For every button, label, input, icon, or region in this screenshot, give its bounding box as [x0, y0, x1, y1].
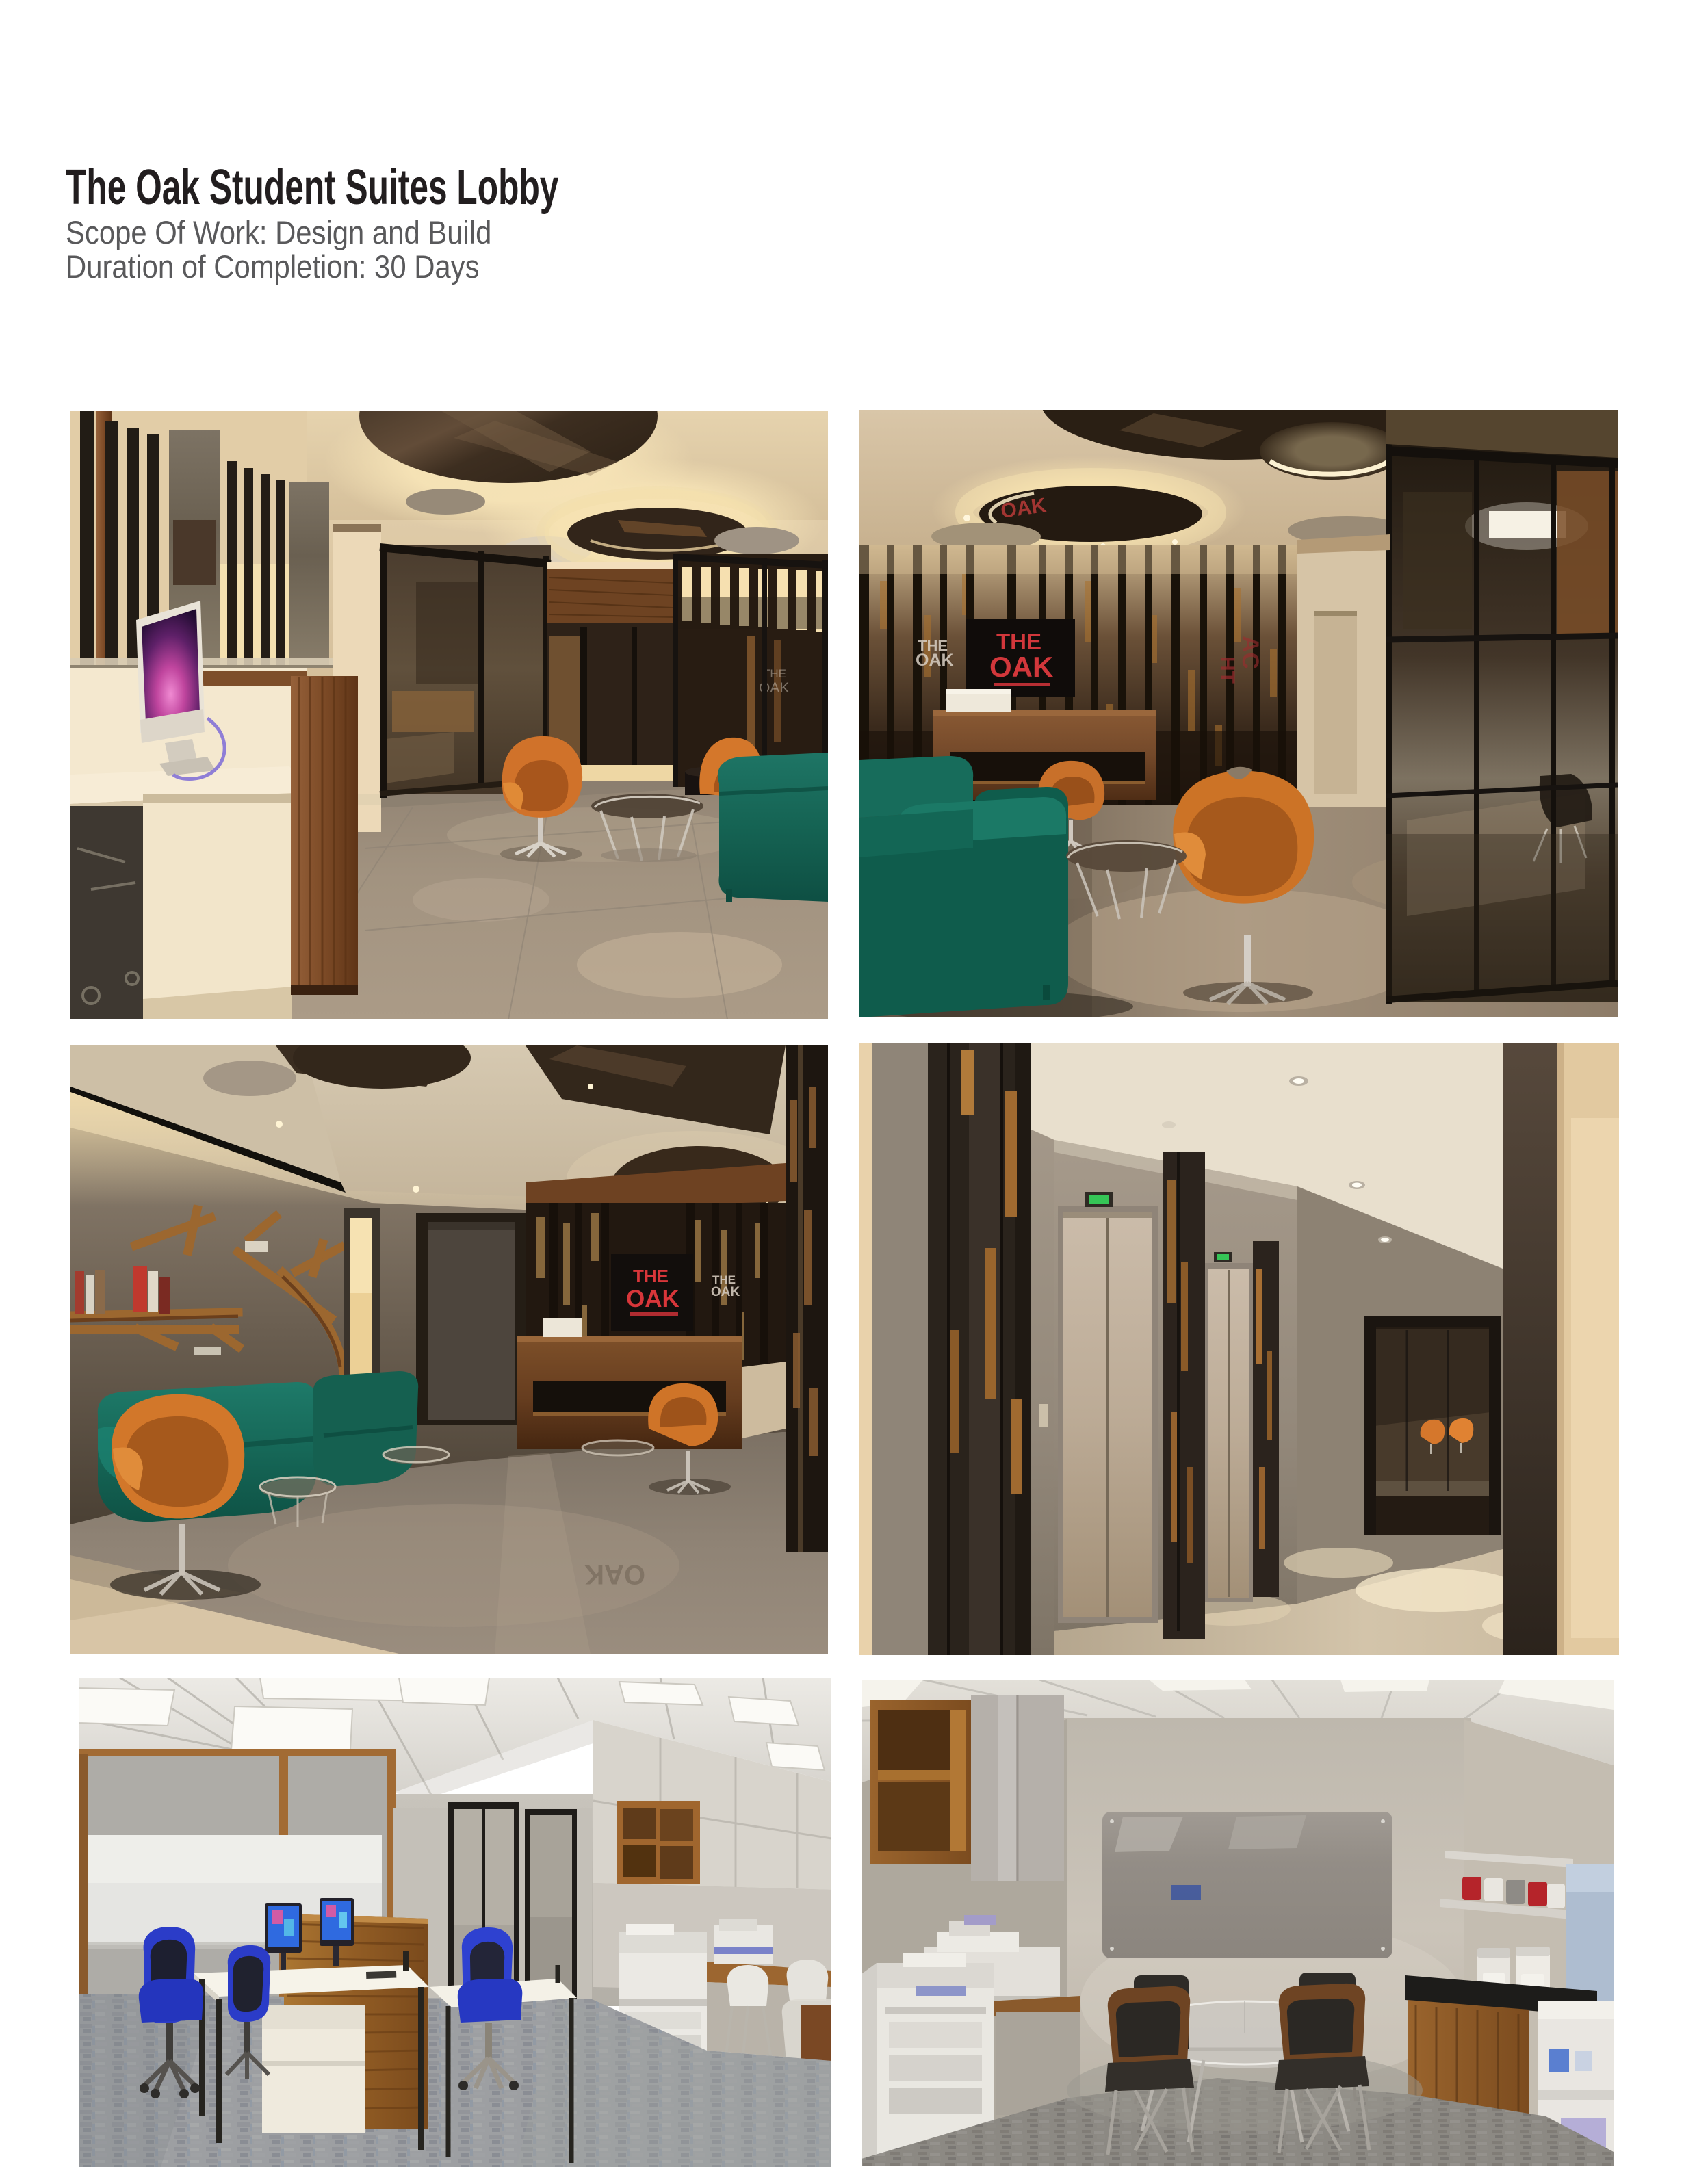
svg-text:OAK: OAK — [584, 1559, 645, 1589]
svg-text:OAK: OAK — [989, 651, 1053, 683]
svg-text:OAK: OAK — [711, 1285, 740, 1299]
svg-text:AC: AC — [1237, 636, 1263, 669]
svg-text:OAK: OAK — [626, 1286, 679, 1312]
svg-text:THE: THE — [633, 1266, 669, 1286]
svg-text:HT: HT — [1216, 656, 1239, 684]
svg-text:OAK: OAK — [916, 651, 954, 670]
